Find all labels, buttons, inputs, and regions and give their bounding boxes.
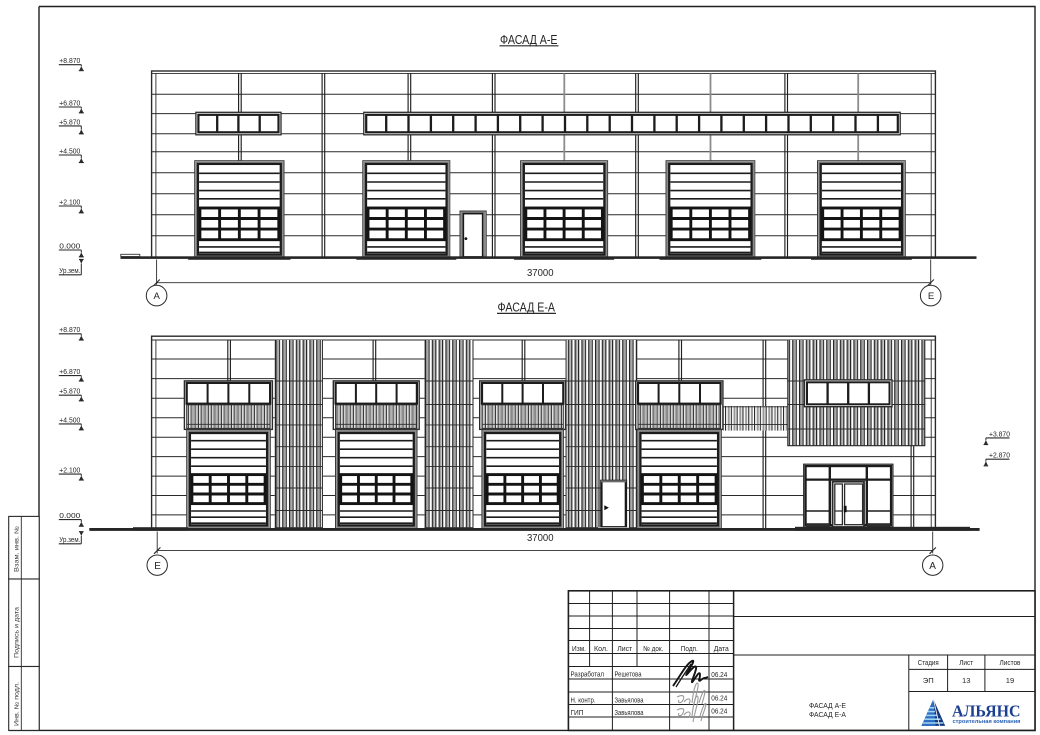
svg-text:+8.870: +8.870	[59, 325, 80, 334]
svg-text:Взам. инв. №: Взам. инв. №	[13, 526, 20, 572]
svg-text:+4.500: +4.500	[59, 415, 80, 424]
svg-text:ФАСАД Е-А: ФАСАД Е-А	[498, 300, 556, 315]
svg-text:06.24: 06.24	[711, 707, 727, 716]
svg-text:Стадия: Стадия	[918, 658, 939, 667]
svg-text:37000: 37000	[527, 268, 554, 279]
svg-text:+2.870: +2.870	[989, 451, 1010, 460]
svg-text:+2.100: +2.100	[59, 197, 80, 206]
svg-text:19: 19	[1006, 676, 1014, 685]
svg-text:Ур.зем.: Ур.зем.	[59, 266, 80, 275]
svg-text:ФАСАД А-Е: ФАСАД А-Е	[809, 703, 846, 710]
svg-text:13: 13	[962, 676, 970, 685]
svg-text:+5.870: +5.870	[59, 387, 80, 396]
svg-text:Дата: Дата	[714, 644, 729, 653]
svg-text:Подп.: Подп.	[681, 644, 698, 653]
svg-text:+5.870: +5.870	[59, 117, 80, 126]
svg-text:Листов: Листов	[1000, 658, 1021, 667]
svg-text:Решетова: Решетова	[615, 672, 642, 679]
svg-text:ФАСАД А-Е: ФАСАД А-Е	[500, 32, 558, 47]
svg-text:Завьялова: Завьялова	[615, 710, 644, 717]
svg-text:+6.870: +6.870	[59, 367, 80, 376]
svg-text:Подпись и дата: Подпись и дата	[14, 606, 20, 658]
svg-text:06.24: 06.24	[711, 670, 727, 679]
svg-text:АЛЬЯНС: АЛЬЯНС	[952, 701, 1021, 720]
svg-text:0.000: 0.000	[59, 511, 80, 520]
svg-text:Кол.: Кол.	[594, 644, 608, 653]
svg-text:Лист: Лист	[617, 644, 633, 653]
svg-text:ФАСАД Е-А: ФАСАД Е-А	[809, 712, 846, 719]
svg-text:Инв. № подл.: Инв. № подл.	[13, 682, 20, 726]
svg-text:А: А	[929, 561, 936, 572]
svg-text:Н. контр.: Н. контр.	[571, 698, 596, 705]
svg-text:0.000: 0.000	[59, 241, 80, 250]
svg-text:А: А	[154, 291, 161, 302]
svg-text:Ур.зем.: Ур.зем.	[59, 535, 80, 544]
svg-text:Е: Е	[154, 561, 161, 572]
svg-text:Разработал: Разработал	[571, 671, 605, 679]
svg-text:37000: 37000	[527, 533, 554, 544]
svg-text:строительная компания: строительная компания	[953, 719, 1021, 725]
svg-text:+2.100: +2.100	[59, 466, 80, 475]
svg-text:ЭП: ЭП	[923, 676, 934, 685]
svg-text:Е: Е	[928, 291, 934, 302]
svg-text:+4.500: +4.500	[59, 146, 80, 155]
svg-text:+6.870: +6.870	[59, 98, 80, 107]
svg-text:Изм.: Изм.	[572, 644, 586, 653]
svg-text:ГИП: ГИП	[571, 710, 584, 717]
svg-text:06.24: 06.24	[711, 693, 727, 702]
svg-text:+3.870: +3.870	[989, 429, 1010, 438]
svg-text:Завьялова: Завьялова	[615, 698, 644, 705]
svg-text:Лист: Лист	[959, 658, 974, 667]
svg-text:+8.870: +8.870	[59, 56, 80, 65]
svg-text:№ док.: № док.	[643, 644, 663, 653]
